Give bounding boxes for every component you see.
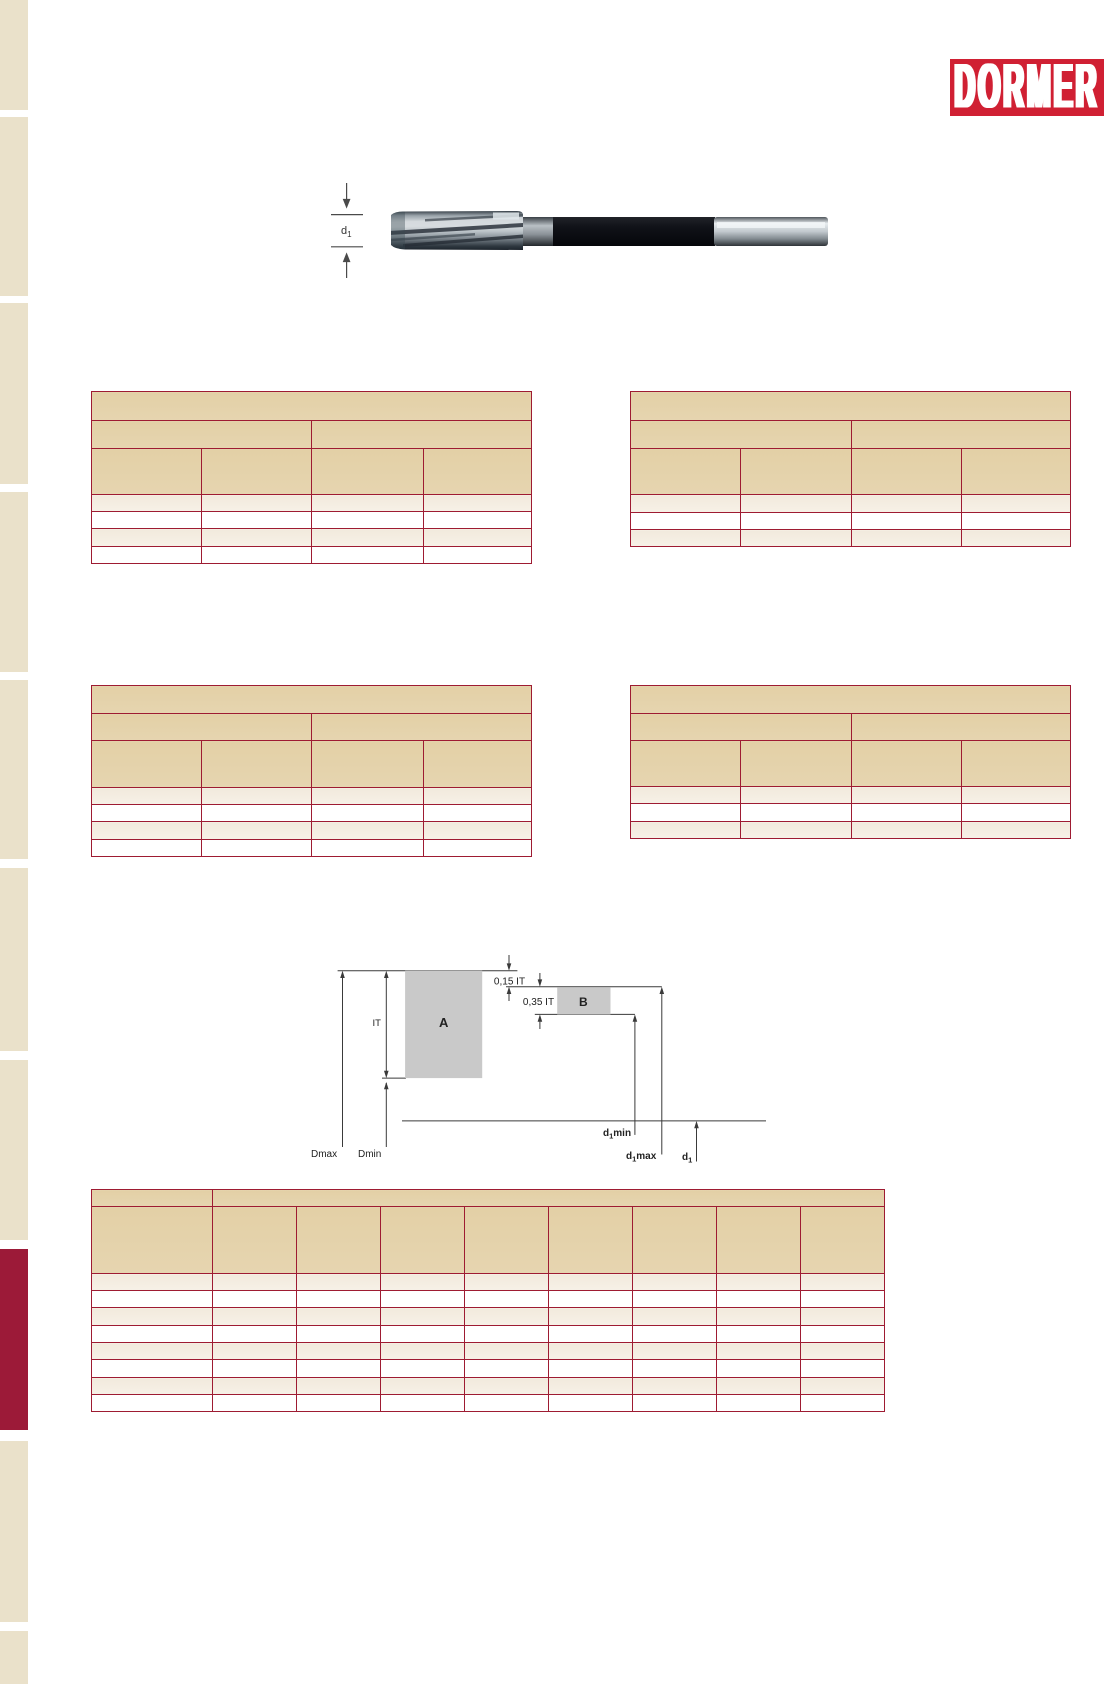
svg-text:d1: d1 xyxy=(682,1152,692,1165)
svg-text:Dmax: Dmax xyxy=(311,1149,337,1160)
svg-text:d1: d1 xyxy=(341,225,352,239)
svg-text:d1max: d1max xyxy=(626,1151,657,1164)
svg-text:d1min: d1min xyxy=(603,1128,631,1141)
svg-text:IT: IT xyxy=(373,1018,382,1029)
svg-text:Dmin: Dmin xyxy=(358,1149,381,1160)
svg-text:A: A xyxy=(439,1015,449,1030)
svg-text:0,15 IT: 0,15 IT xyxy=(494,976,525,987)
svg-text:0,35 IT: 0,35 IT xyxy=(523,997,554,1008)
svg-text:B: B xyxy=(579,995,588,1009)
